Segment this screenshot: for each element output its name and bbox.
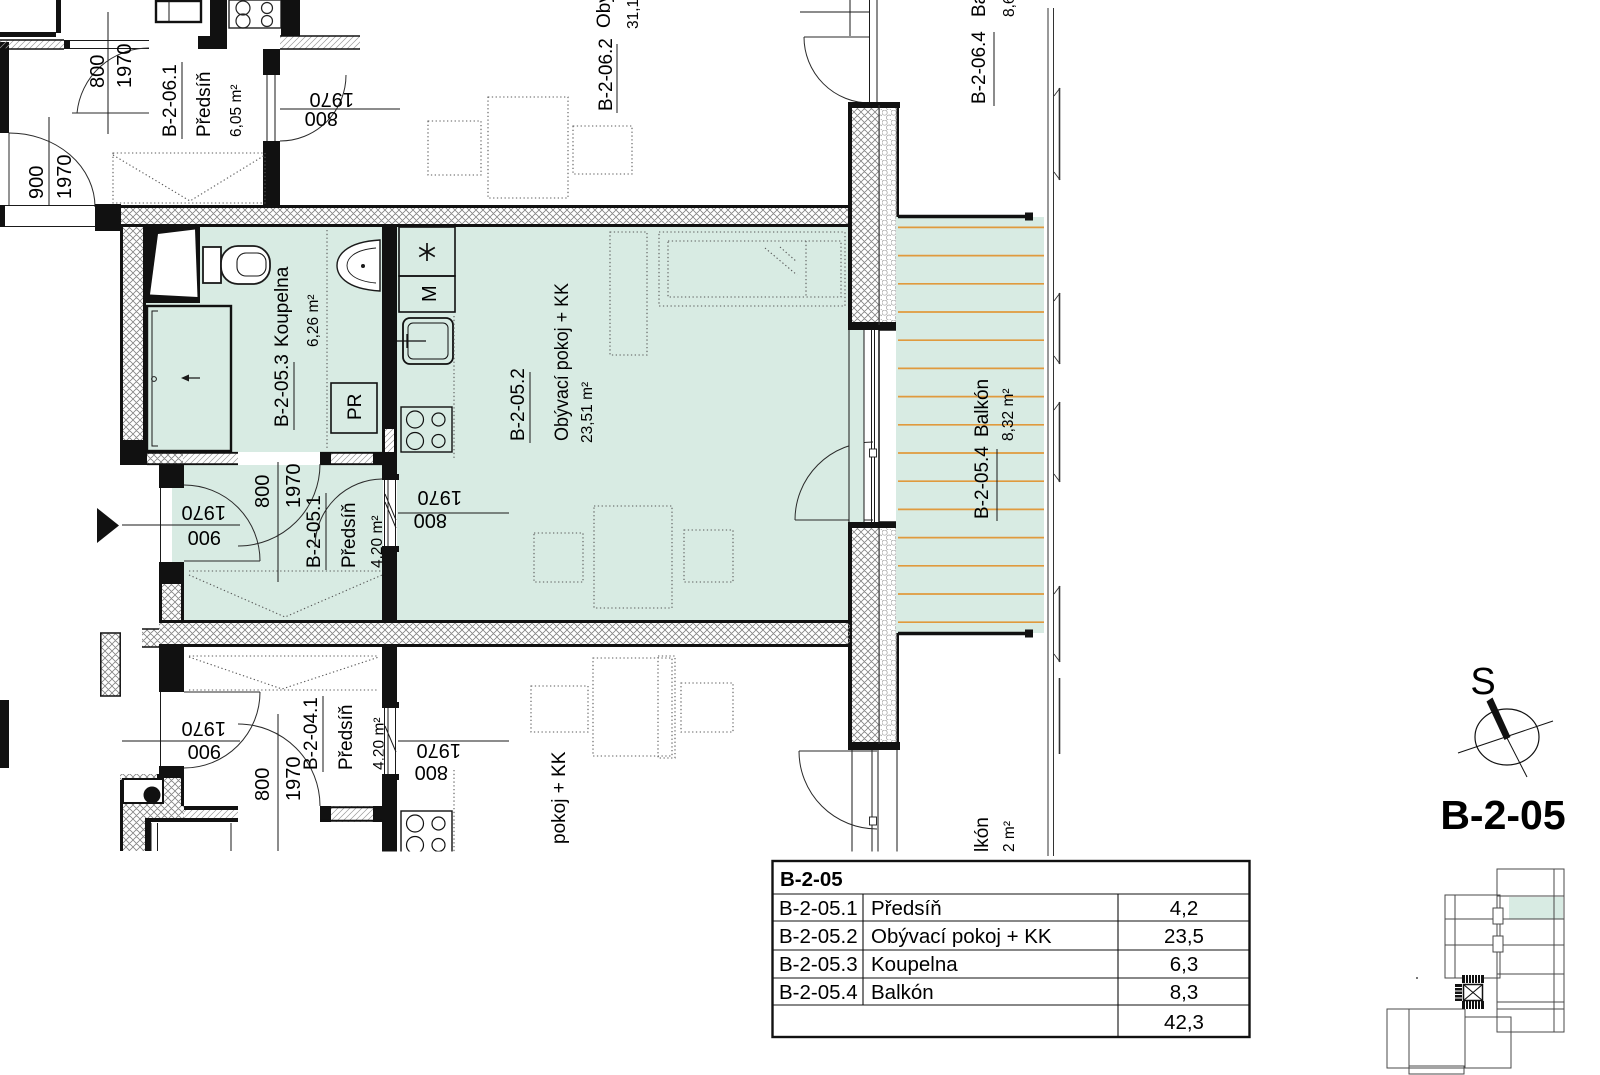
- svg-text:1970: 1970: [310, 88, 355, 110]
- svg-text:42,3: 42,3: [1164, 1011, 1204, 1034]
- svg-text:800: 800: [414, 509, 447, 531]
- svg-text:23,51 m²: 23,51 m²: [579, 382, 596, 443]
- svg-text:6,26 m²: 6,26 m²: [305, 294, 322, 347]
- svg-text:B-2-04.1: B-2-04.1: [301, 697, 322, 770]
- svg-text:M: M: [419, 285, 441, 302]
- svg-text:B-2-05.1: B-2-05.1: [304, 495, 325, 568]
- svg-text:Balkón: Balkón: [871, 981, 934, 1004]
- svg-text:PR: PR: [345, 394, 366, 420]
- svg-text:Koupelna: Koupelna: [272, 266, 293, 347]
- svg-text:Balkón: Balkón: [972, 379, 993, 437]
- svg-text:Obývací pokoj + KK: Obývací pokoj + KK: [871, 925, 1052, 948]
- svg-text:B-2-05.1: B-2-05.1: [779, 897, 858, 920]
- svg-text:B-2-05.3: B-2-05.3: [272, 354, 293, 427]
- svg-text:B-2-06.2: B-2-06.2: [596, 38, 617, 111]
- svg-text:1970: 1970: [182, 717, 227, 739]
- svg-text:900: 900: [188, 740, 221, 762]
- svg-text:8,3: 8,3: [1170, 981, 1199, 1004]
- svg-text:1970: 1970: [417, 739, 462, 761]
- svg-text:800: 800: [305, 107, 338, 129]
- svg-text:Koupelna: Koupelna: [871, 953, 958, 976]
- svg-text:23,5: 23,5: [1164, 925, 1204, 948]
- svg-text:B-2-05.3: B-2-05.3: [779, 953, 858, 976]
- svg-text:lkón: lkón: [972, 817, 993, 852]
- svg-text:B-2-05.4: B-2-05.4: [779, 981, 858, 1004]
- svg-text:8,62 m²: 8,62 m²: [1001, 0, 1018, 17]
- svg-text:1970: 1970: [283, 464, 305, 509]
- svg-text:6,05 m²: 6,05 m²: [228, 84, 245, 137]
- svg-text:Obývací pokoj + KK: Obývací pokoj + KK: [594, 0, 615, 28]
- svg-text:Obývací pokoj + KK: Obývací pokoj + KK: [552, 283, 573, 441]
- svg-text:1970: 1970: [418, 486, 463, 508]
- svg-text:1970: 1970: [54, 155, 76, 200]
- svg-text:S: S: [1470, 661, 1495, 703]
- svg-text:Předsíň: Předsíň: [871, 897, 942, 920]
- svg-text:800: 800: [415, 761, 448, 783]
- svg-text:Předsíň: Předsíň: [339, 503, 360, 568]
- svg-text:1970: 1970: [182, 501, 227, 523]
- svg-text:Předsíň: Předsíň: [336, 705, 357, 770]
- svg-text:B-2-06.4: B-2-06.4: [969, 31, 990, 104]
- svg-text:1970: 1970: [114, 44, 136, 89]
- svg-text:B-2-06.1: B-2-06.1: [160, 64, 181, 137]
- svg-text:2 m²: 2 m²: [1001, 821, 1018, 852]
- svg-text:800: 800: [252, 475, 274, 508]
- svg-text:900: 900: [188, 526, 221, 548]
- svg-text:B-2-05.2: B-2-05.2: [779, 925, 858, 948]
- svg-text:8,32 m²: 8,32 m²: [1000, 388, 1017, 441]
- svg-text:4,2: 4,2: [1170, 897, 1199, 920]
- svg-text:31,10 m²: 31,10 m²: [625, 0, 642, 29]
- svg-text:pokoj + KK: pokoj + KK: [549, 751, 570, 844]
- svg-text:800: 800: [87, 55, 109, 88]
- svg-text:6,3: 6,3: [1170, 953, 1199, 976]
- svg-text:900: 900: [26, 166, 48, 199]
- svg-text:Balkón: Balkón: [969, 0, 990, 17]
- svg-text:B-2-05.2: B-2-05.2: [508, 368, 529, 441]
- svg-text:B-2-05: B-2-05: [780, 868, 843, 891]
- svg-text:Předsíň: Předsíň: [194, 72, 215, 137]
- svg-text:800: 800: [252, 768, 274, 801]
- svg-text:B-2-05.4: B-2-05.4: [972, 446, 993, 519]
- svg-text:B-2-05: B-2-05: [1440, 792, 1565, 838]
